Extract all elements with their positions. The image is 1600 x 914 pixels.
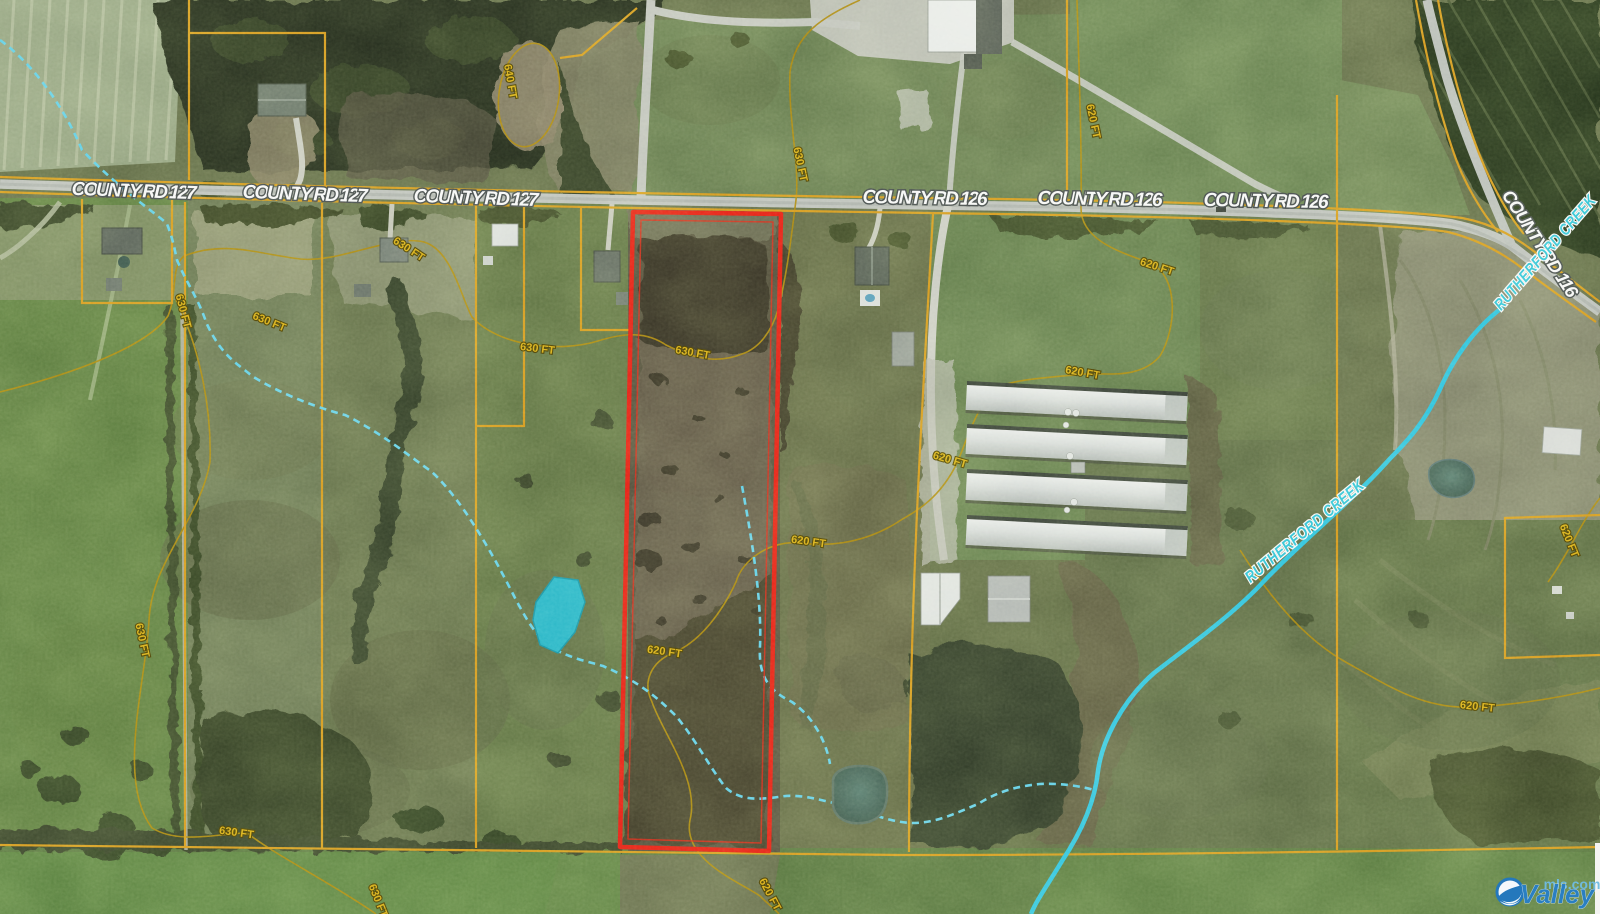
svg-text:Valley: Valley	[1520, 879, 1596, 909]
